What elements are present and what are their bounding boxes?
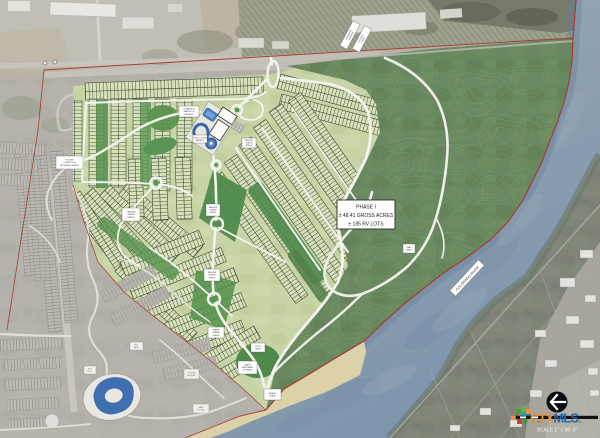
- svg-text:PARK: PARK: [134, 346, 140, 349]
- svg-text:CTXMLS: CTXMLS: [530, 411, 579, 426]
- svg-text:SPACE: SPACE: [246, 144, 253, 147]
- svg-text:PASSIVE: PASSIVE: [127, 211, 136, 214]
- svg-text:AREA: AREA: [255, 347, 261, 350]
- svg-text:SPACE: SPACE: [128, 216, 136, 219]
- svg-text:± 185 RV LOTS: ± 185 RV LOTS: [348, 222, 384, 228]
- svg-text:MAILBOX &: MAILBOX &: [184, 110, 195, 113]
- svg-text:GREEN: GREEN: [127, 214, 135, 216]
- svg-text:PHASE: PHASE: [213, 329, 220, 332]
- svg-text:TRAILS: TRAILS: [406, 248, 413, 251]
- svg-text:HOUSE: HOUSE: [198, 409, 205, 411]
- svg-text:SPACE: SPACE: [210, 211, 217, 214]
- svg-text:PHASE I: PHASE I: [356, 205, 376, 211]
- svg-text:BETWEEN PHASES: BETWEEN PHASES: [60, 164, 79, 167]
- svg-text:BEACH: BEACH: [269, 392, 276, 395]
- svg-text:LAUNDRY: LAUNDRY: [184, 113, 194, 116]
- svg-text:SPACE: SPACE: [213, 334, 220, 337]
- svg-text:ACCESS: ACCESS: [188, 374, 197, 377]
- svg-text:SPACE: SPACE: [209, 276, 216, 279]
- svg-text:SCALE 1" = 80'-0": SCALE 1" = 80'-0": [537, 428, 578, 434]
- svg-text:AREA: AREA: [270, 395, 276, 398]
- svg-text:AMENITY: AMENITY: [196, 139, 205, 142]
- svg-text:± 48.41 GROSS ACRES: ± 48.41 GROSS ACRES: [339, 213, 394, 219]
- svg-text:POOL: POOL: [87, 371, 93, 373]
- svg-text:STORAGE: STORAGE: [243, 369, 253, 372]
- svg-text:PASSIVE: PASSIVE: [208, 271, 217, 274]
